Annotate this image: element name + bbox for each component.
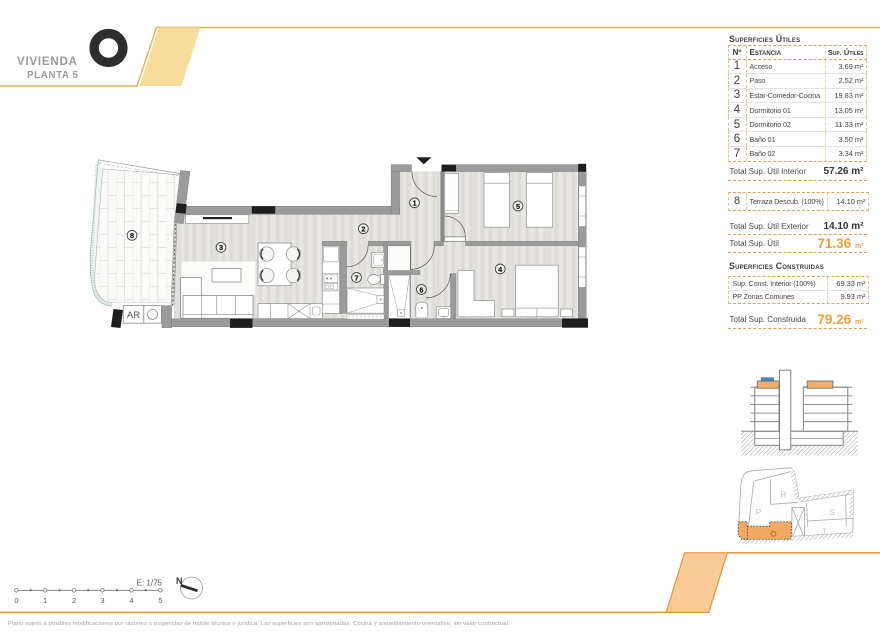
svg-text:R: R [780, 490, 786, 500]
svg-text:5: 5 [158, 596, 162, 605]
svg-text:P: P [756, 507, 762, 517]
svg-text:7: 7 [354, 273, 358, 282]
svg-text:6: 6 [419, 285, 423, 294]
svg-text:2: 2 [72, 596, 76, 605]
svg-text:3: 3 [100, 596, 104, 605]
svg-text:AR: AR [127, 310, 140, 321]
svg-text:1: 1 [43, 596, 47, 605]
svg-text:4: 4 [129, 596, 133, 605]
svg-text:5: 5 [516, 202, 520, 211]
svg-text:T: T [822, 527, 827, 537]
svg-text:8: 8 [130, 231, 134, 240]
svg-text:2: 2 [361, 225, 365, 234]
svg-text:E: 1/75: E: 1/75 [137, 579, 163, 588]
svg-text:3: 3 [219, 243, 223, 252]
svg-text:0: 0 [14, 596, 18, 605]
svg-text:1: 1 [412, 199, 416, 208]
svg-text:S: S [829, 507, 835, 517]
